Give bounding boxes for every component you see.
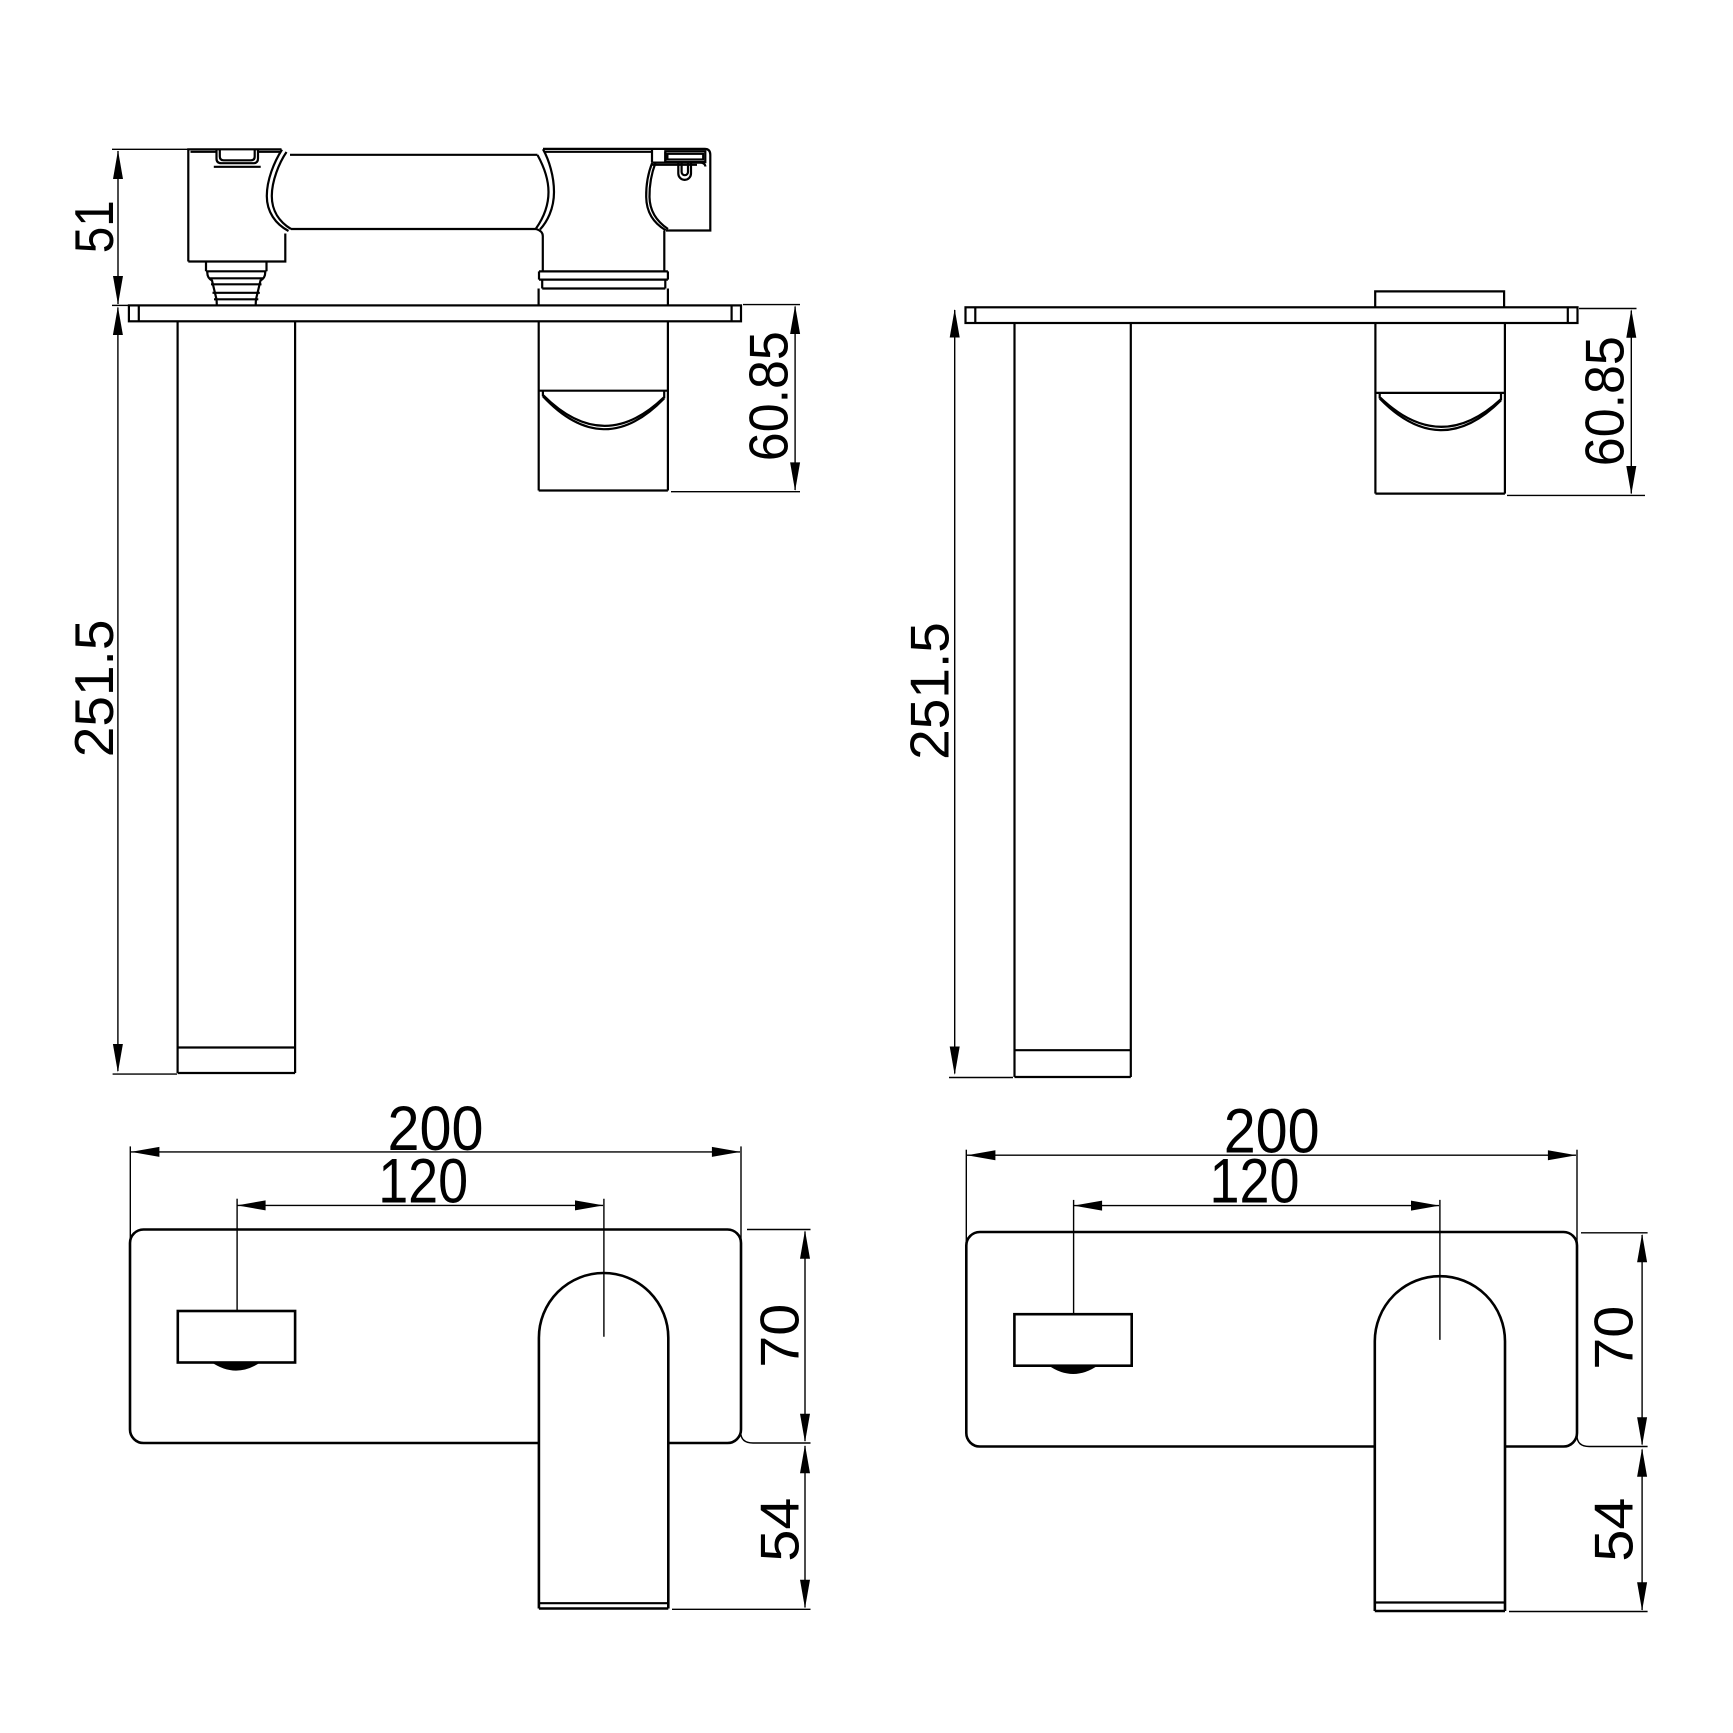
svg-text:60.85: 60.85 (738, 331, 800, 461)
svg-text:251.5: 251.5 (63, 620, 125, 758)
svg-text:54: 54 (748, 1498, 810, 1562)
svg-text:120: 120 (1210, 1147, 1300, 1217)
svg-text:120: 120 (378, 1146, 468, 1216)
svg-text:70: 70 (1583, 1306, 1645, 1370)
svg-text:60.85: 60.85 (1574, 336, 1636, 466)
svg-text:54: 54 (1583, 1498, 1645, 1562)
svg-text:70: 70 (748, 1304, 810, 1368)
svg-text:251.5: 251.5 (898, 622, 960, 760)
svg-text:51: 51 (63, 200, 125, 253)
